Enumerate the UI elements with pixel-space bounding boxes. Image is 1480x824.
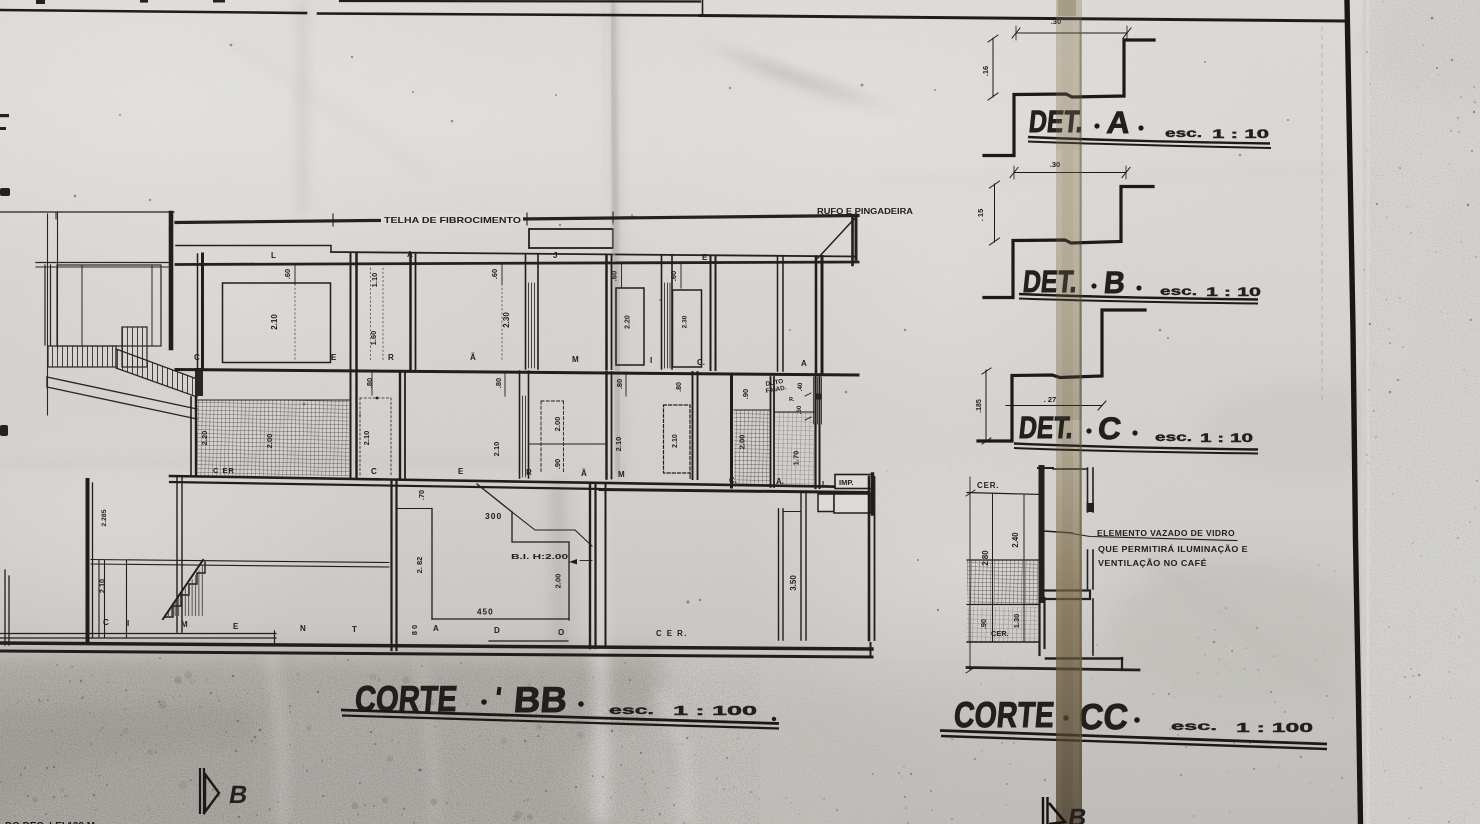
svg-text:B: B <box>1066 804 1089 824</box>
